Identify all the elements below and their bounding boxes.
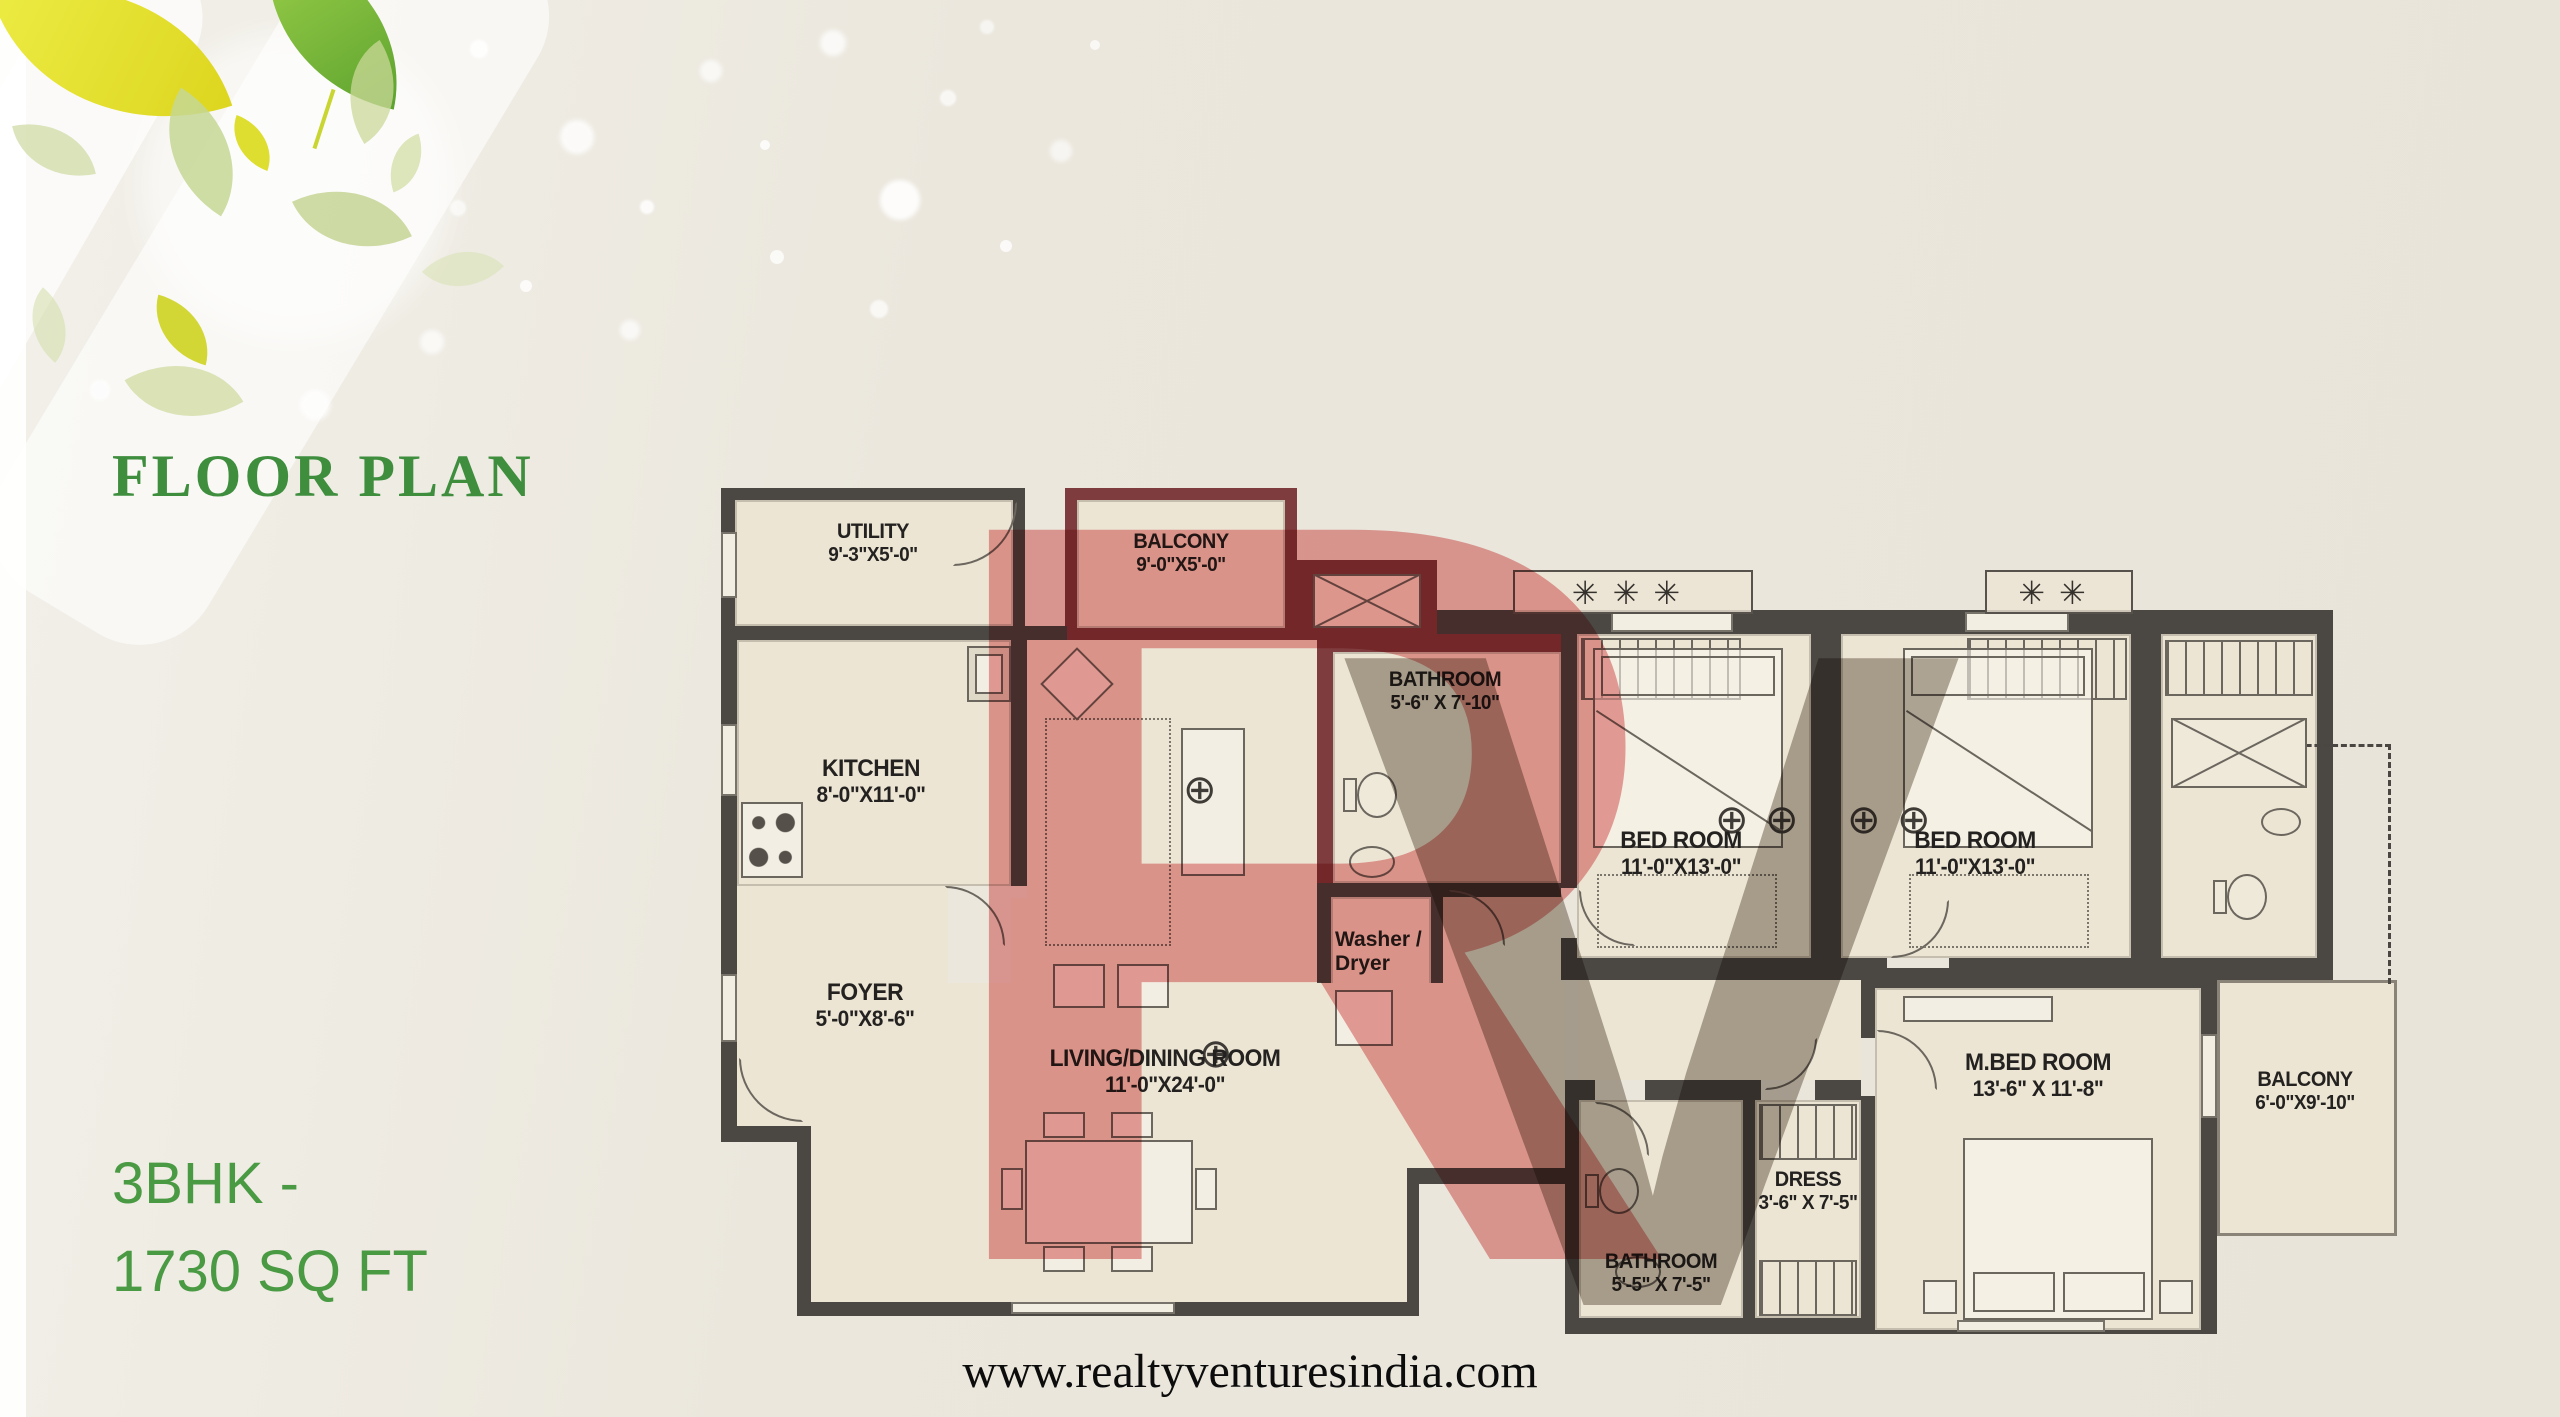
wardrobe-hatch <box>1759 1104 1857 1160</box>
bokeh-dot <box>980 20 994 34</box>
room-label-bedroom-1: BED ROOM 11'-0"X13'-0" <box>1620 828 1742 880</box>
room-label-bathroom-bottom: BATHROOM 5'-5" X 7'-5" <box>1605 1250 1717 1296</box>
wardrobe-hatch <box>2165 640 2313 696</box>
window <box>1965 612 2069 632</box>
bokeh-dot <box>1000 240 1012 252</box>
toilet-bowl <box>1599 1168 1639 1214</box>
room-dims: 3'-6" X 7'-5" <box>1758 1192 1857 1214</box>
floor-gap <box>1011 898 1027 983</box>
pillow <box>1911 656 2085 696</box>
armchair <box>1053 964 1105 1008</box>
room-dims: 8'-0"X11'-0" <box>817 783 926 808</box>
room-label-balcony-right: BALCONY 6'-0"X9'-10" <box>2255 1068 2355 1114</box>
bed <box>1963 1138 2153 1320</box>
room-dims: 5'-5" X 7'-5" <box>1605 1274 1717 1296</box>
wall <box>1317 897 1331 983</box>
window <box>721 974 737 1042</box>
dashed-boundary <box>2388 744 2391 984</box>
bokeh-dot <box>520 280 532 292</box>
room-name: LIVING/DINING ROOM <box>1050 1046 1281 1073</box>
wall <box>1317 640 1333 883</box>
planter-icon: ✳ <box>1572 575 1613 611</box>
wall <box>2131 634 2161 980</box>
toilet-tank <box>1343 778 1357 812</box>
room-dims: 5'-0"X8'-6" <box>816 1007 915 1032</box>
website-url: www.realtyventuresindia.com <box>0 1344 2500 1399</box>
room-name: KITCHEN <box>817 756 926 783</box>
room-label-kitchen: KITCHEN 8'-0"X11'-0" <box>817 756 926 808</box>
dining-chair <box>1111 1112 1153 1138</box>
wall <box>2201 980 2217 1330</box>
room-name: BATHROOM <box>1389 668 1501 692</box>
toilet <box>1585 1164 1641 1218</box>
floor-plan: ✳✳✳ ✳✳ <box>713 478 2405 1340</box>
planter-icon: ✳ <box>2018 575 2059 611</box>
armchair <box>1117 964 1169 1008</box>
wall <box>1645 1080 1761 1100</box>
kitchen-sink <box>967 646 1011 702</box>
bokeh-dot <box>560 120 594 154</box>
wall <box>721 628 737 1142</box>
stove <box>741 802 803 878</box>
wall <box>1011 640 1027 886</box>
toilet-bowl <box>2227 874 2267 920</box>
dining-chair <box>1043 1246 1085 1272</box>
wall <box>1317 883 1447 897</box>
room-dims: 9'-0"X5'-0" <box>1133 554 1228 576</box>
bokeh-dot <box>90 380 110 400</box>
bokeh-dot <box>450 200 466 216</box>
unit-type-text: 3BHK - <box>112 1150 299 1217</box>
pillow <box>1973 1272 2055 1312</box>
room-name: BED ROOM <box>1914 828 2036 855</box>
room-name: BED ROOM <box>1620 828 1742 855</box>
room-dims: 9'-3"X5'-0" <box>828 544 917 566</box>
bedside-table <box>1923 1280 1957 1314</box>
dresser <box>1903 996 2053 1022</box>
bokeh-dot <box>640 200 654 214</box>
room-dims: 11'-0"X13'-0" <box>1620 855 1742 880</box>
toilet-bowl <box>1357 772 1397 818</box>
window <box>721 532 737 598</box>
planter-icon: ✳ <box>2059 575 2100 611</box>
bokeh-dot <box>940 90 956 106</box>
room-name: FOYER <box>816 980 915 1007</box>
toilet-tank <box>2213 880 2227 914</box>
dining-chair <box>1111 1246 1153 1272</box>
sink <box>2261 808 2301 836</box>
wall <box>1297 634 1577 652</box>
window <box>1011 1302 1175 1314</box>
sink <box>1349 846 1395 878</box>
room-label-foyer: FOYER 5'-0"X8'-6" <box>816 980 915 1032</box>
bed <box>1593 648 1783 848</box>
wardrobe-hatch <box>1759 1260 1857 1316</box>
lamp-icon: ⊕ <box>1765 800 1799 840</box>
bed-fold-line <box>1596 710 1783 842</box>
bokeh-dot <box>620 320 640 340</box>
washer-unit <box>1335 990 1393 1046</box>
toilet <box>2213 870 2269 924</box>
bokeh-dot <box>1050 140 1072 162</box>
room-label-utility: UTILITY 9'-3"X5'-0" <box>828 520 917 566</box>
page-title: FLOOR PLAN <box>112 442 534 511</box>
window <box>1611 612 1733 632</box>
window <box>721 724 737 796</box>
room-label-bathroom-top: BATHROOM 5'-6" X 7'-10" <box>1389 668 1501 714</box>
bokeh-dot <box>420 330 444 354</box>
wall <box>2317 628 2333 980</box>
bokeh-dot <box>820 30 846 56</box>
wall <box>1861 968 2217 988</box>
planter-icon: ✳ <box>1653 575 1694 611</box>
room-label-dress: DRESS 3'-6" X 7'-5" <box>1758 1168 1857 1214</box>
flyer-canvas: FLOOR PLAN 3BHK - 1730 SQ FT www.realtyv… <box>0 0 2560 1417</box>
unit-area-text: 1730 SQ FT <box>112 1238 428 1305</box>
room-label-balcony-top: BALCONY 9'-0"X5'-0" <box>1133 530 1228 576</box>
room-name: UTILITY <box>828 520 917 544</box>
room-mbed-corridor <box>1579 980 1861 1080</box>
shaft-icon <box>1313 574 1421 628</box>
wall <box>1561 634 1577 888</box>
room-dims: 11'-0"X13'-0" <box>1914 855 2036 880</box>
room-label-bedroom-2: BED ROOM 11'-0"X13'-0" <box>1914 828 2036 880</box>
bed-fold-line <box>1906 710 2093 842</box>
window <box>1957 1320 2105 1332</box>
room-label-washer-dryer: Washer / Dryer <box>1335 928 1431 976</box>
room-name: DRESS <box>1758 1168 1857 1192</box>
door-arc <box>1765 1038 1817 1090</box>
room-name: BATHROOM <box>1605 1250 1717 1274</box>
bokeh-dot <box>760 140 770 150</box>
bedside-table <box>2159 1280 2193 1314</box>
bokeh-dot <box>880 180 920 220</box>
wall <box>1811 634 1841 980</box>
shaft-icon <box>2171 718 2307 788</box>
room-name: M.BED ROOM <box>1965 1050 2111 1077</box>
wall <box>1815 1080 1861 1100</box>
door-arc <box>945 886 1005 946</box>
rug <box>1909 874 2089 948</box>
wall <box>1577 958 1811 980</box>
carpet <box>1045 718 1171 946</box>
lamp-icon: ⊕ <box>1847 800 1881 840</box>
wall <box>1565 1080 1579 1332</box>
pillow <box>2063 1272 2145 1312</box>
window <box>2201 1034 2217 1118</box>
pillow <box>1601 656 1775 696</box>
room-passage <box>1403 983 1565 1168</box>
lamp-icon: ⊕ <box>1183 770 1217 810</box>
bokeh-dot <box>770 250 784 264</box>
dining-table <box>1025 1140 1193 1244</box>
wall <box>1743 1100 1755 1320</box>
planter-box: ✳✳✳ <box>1513 570 1753 614</box>
wall <box>1861 1096 1875 1330</box>
bokeh-dot <box>470 40 488 58</box>
dining-chair <box>1043 1112 1085 1138</box>
rug <box>1597 874 1777 948</box>
dining-chair <box>1195 1168 1217 1210</box>
bokeh-dot <box>1090 40 1100 50</box>
room-label-living-dining: LIVING/DINING ROOM 11'-0"X24'-0" <box>1050 1046 1281 1098</box>
planter-icon: ✳ <box>1613 575 1654 611</box>
room-label-master-bedroom: M.BED ROOM 13'-6" X 11'-8" <box>1965 1050 2111 1102</box>
room-dims: 13'-6" X 11'-8" <box>1965 1077 2111 1102</box>
toilet <box>1343 768 1399 822</box>
planter-box: ✳✳ <box>1985 570 2133 614</box>
room-name: BALCONY <box>2255 1068 2355 1092</box>
wall <box>1561 938 1577 980</box>
bed <box>1903 648 2093 848</box>
room-dims: 5'-6" X 7'-10" <box>1389 692 1501 714</box>
wall <box>1403 1168 1579 1184</box>
dining-chair <box>1001 1168 1023 1210</box>
toilet-tank <box>1585 1174 1599 1208</box>
bokeh-dot <box>700 60 722 82</box>
bokeh-dot <box>870 300 888 318</box>
bokeh-dot <box>300 390 330 420</box>
room-name: BALCONY <box>1133 530 1228 554</box>
wall <box>1861 968 1875 1038</box>
room-dims: 11'-0"X24'-0" <box>1050 1073 1281 1098</box>
room-dims: 6'-0"X9'-10" <box>2255 1092 2355 1114</box>
